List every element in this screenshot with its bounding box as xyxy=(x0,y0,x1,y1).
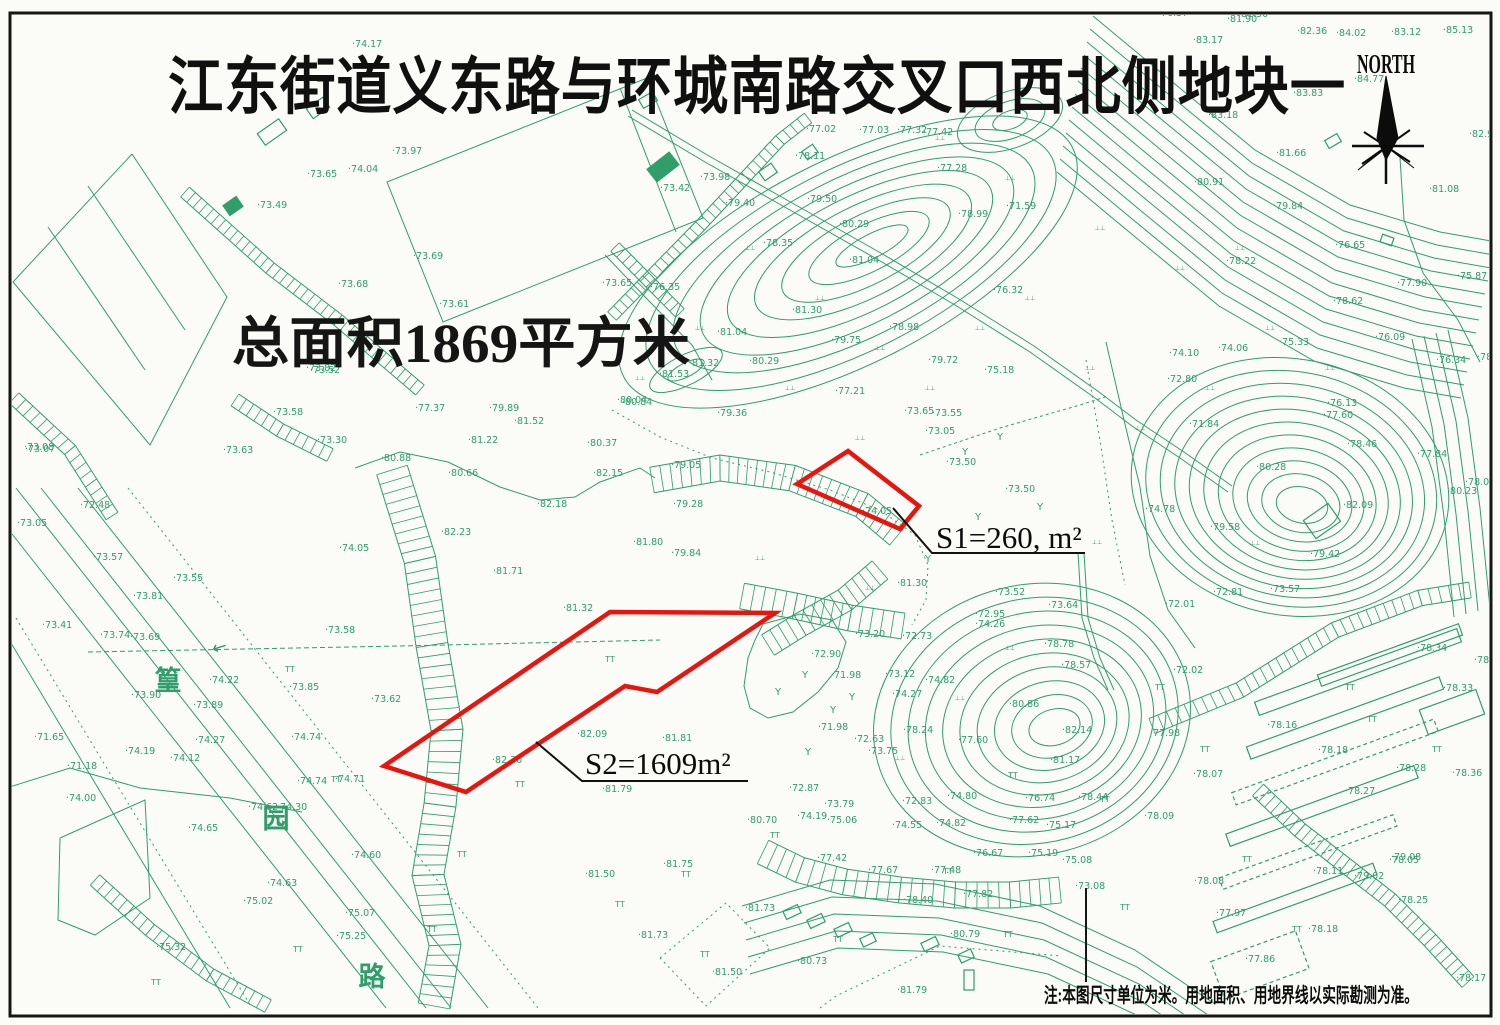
road-name-char-3: 路 xyxy=(359,961,387,992)
svg-text:·74.80: ·74.80 xyxy=(947,791,977,802)
svg-text:TT: TT xyxy=(1007,771,1018,780)
svg-text:·73.65: ·73.65 xyxy=(904,406,934,417)
svg-text:·82.18: ·82.18 xyxy=(537,499,567,510)
svg-text:·78.98: ·78.98 xyxy=(889,322,919,333)
svg-text:⊥⊥: ⊥⊥ xyxy=(865,585,875,592)
svg-text:·75.17: ·75.17 xyxy=(1046,820,1076,831)
svg-text:·73.75: ·73.75 xyxy=(868,746,898,757)
svg-text:·77.60: ·77.60 xyxy=(1323,410,1353,421)
svg-text:·75.33: ·75.33 xyxy=(1279,337,1309,348)
svg-text:·82.09: ·82.09 xyxy=(1343,500,1373,511)
svg-text:·74.63: ·74.63 xyxy=(267,878,297,889)
svg-text:·83.12: ·83.12 xyxy=(1391,27,1421,38)
svg-text:·81.50: ·81.50 xyxy=(585,869,615,880)
svg-text:·78.11: ·78.11 xyxy=(795,151,825,162)
svg-text:·73.08: ·73.08 xyxy=(24,442,54,453)
svg-text:·78.35: ·78.35 xyxy=(1474,655,1500,666)
svg-text:·73.52: ·73.52 xyxy=(995,587,1025,598)
svg-text:·75.19: ·75.19 xyxy=(1028,848,1058,859)
svg-text:·81.79: ·81.79 xyxy=(897,985,927,996)
svg-text:·73.81: ·73.81 xyxy=(133,591,163,602)
svg-text:·74.82: ·74.82 xyxy=(936,818,966,829)
svg-text:TT: TT xyxy=(1366,715,1377,724)
svg-text:·77.98: ·77.98 xyxy=(1150,728,1180,739)
svg-text:TT: TT xyxy=(1199,745,1210,754)
svg-text:·72.87: ·72.87 xyxy=(789,783,819,794)
svg-text:·81.73: ·81.73 xyxy=(638,930,668,941)
svg-text:·73.62: ·73.62 xyxy=(371,694,401,705)
svg-text:·78.28: ·78.28 xyxy=(1396,763,1426,774)
svg-text:·73.69: ·73.69 xyxy=(130,632,160,643)
svg-text:·79.05: ·79.05 xyxy=(671,460,701,471)
svg-text:·77.62: ·77.62 xyxy=(1009,815,1039,826)
svg-text:·77.97: ·77.97 xyxy=(1216,908,1246,919)
svg-text:·74.12: ·74.12 xyxy=(170,753,200,764)
svg-text:·72.80: ·72.80 xyxy=(1167,374,1197,385)
svg-text:⊥⊥: ⊥⊥ xyxy=(955,695,965,702)
svg-text:·74.55: ·74.55 xyxy=(892,820,922,831)
svg-text:·79.40: ·79.40 xyxy=(725,198,755,209)
svg-text:·78.25: ·78.25 xyxy=(1398,895,1428,906)
svg-text:·73.49: ·73.49 xyxy=(257,200,287,211)
svg-text:⊥⊥: ⊥⊥ xyxy=(925,385,935,392)
svg-text:·81.81: ·81.81 xyxy=(662,733,692,744)
svg-text:·77.37: ·77.37 xyxy=(415,403,445,414)
svg-text:Y: Y xyxy=(1036,502,1044,513)
svg-text:·81.32: ·81.32 xyxy=(689,358,719,369)
svg-text:⊥⊥: ⊥⊥ xyxy=(1095,225,1105,232)
svg-text:·78.18: ·78.18 xyxy=(1308,924,1338,935)
svg-text:·80.37: ·80.37 xyxy=(587,438,617,449)
svg-text:⊥⊥: ⊥⊥ xyxy=(1235,245,1245,252)
total-area-label: 总面积1869平方米 xyxy=(232,313,690,374)
svg-text:⊥⊥: ⊥⊥ xyxy=(1205,385,1215,392)
svg-text:·77.21: ·77.21 xyxy=(835,386,865,397)
svg-text:TT: TT xyxy=(292,945,303,954)
svg-text:·82.09: ·82.09 xyxy=(577,729,607,740)
svg-text:·79.84: ·79.84 xyxy=(671,548,701,559)
svg-text:TT: TT xyxy=(456,850,467,859)
svg-text:Y: Y xyxy=(774,687,782,698)
svg-text:·73.65: ·73.65 xyxy=(307,169,337,180)
svg-text:·78.78: ·78.78 xyxy=(1044,639,1074,650)
svg-text:·80.28: ·80.28 xyxy=(1256,462,1286,473)
svg-text:·73.57: ·73.57 xyxy=(93,552,123,563)
svg-text:·73.50: ·73.50 xyxy=(946,457,976,468)
svg-text:·78.62: ·78.62 xyxy=(1333,296,1363,307)
svg-text:·76.09: ·76.09 xyxy=(1375,332,1405,343)
svg-text:·73.55: ·73.55 xyxy=(173,573,203,584)
svg-text:·84.02: ·84.02 xyxy=(1336,28,1366,39)
svg-text:TT: TT xyxy=(1344,683,1355,692)
svg-text:·74.00: ·74.00 xyxy=(66,793,96,804)
svg-text:⊥⊥: ⊥⊥ xyxy=(635,375,645,382)
svg-text:·78.18: ·78.18 xyxy=(1318,745,1348,756)
svg-text:·73.30: ·73.30 xyxy=(317,435,347,446)
svg-text:·75.32: ·75.32 xyxy=(156,942,186,953)
svg-text:·77.82: ·77.82 xyxy=(963,889,993,900)
svg-text:·81.30: ·81.30 xyxy=(897,578,927,589)
svg-text:·73.20: ·73.20 xyxy=(855,629,885,640)
svg-text:·77.90: ·77.90 xyxy=(1397,278,1427,289)
svg-text:·81.17: ·81.17 xyxy=(1050,755,1080,766)
svg-text:·78.22: ·78.22 xyxy=(1226,256,1256,267)
svg-text:·78.08: ·78.08 xyxy=(1194,876,1224,887)
svg-text:⊥⊥: ⊥⊥ xyxy=(695,325,705,332)
svg-text:·78.40: ·78.40 xyxy=(903,895,933,906)
svg-text:·73.58: ·73.58 xyxy=(273,407,303,418)
svg-text:TT: TT xyxy=(514,780,525,789)
svg-text:⊥⊥: ⊥⊥ xyxy=(1250,540,1260,547)
svg-text:⊥⊥: ⊥⊥ xyxy=(745,245,755,252)
svg-text:·81.71: ·81.71 xyxy=(493,566,523,577)
svg-text:·80.84: ·80.84 xyxy=(622,397,652,408)
svg-text:·80.79: ·80.79 xyxy=(950,929,980,940)
svg-text:·74.74: ·74.74 xyxy=(297,776,327,787)
north-arrow-icon xyxy=(1352,76,1424,184)
svg-text:·79.89: ·79.89 xyxy=(489,403,519,414)
svg-text:·73.05: ·73.05 xyxy=(925,426,955,437)
north-label: NORTH xyxy=(1357,49,1415,79)
svg-text:·81.80: ·81.80 xyxy=(633,537,663,548)
svg-text:·74.71: ·74.71 xyxy=(335,774,365,785)
svg-text:·77.42: ·77.42 xyxy=(817,853,847,864)
svg-text:·79.36: ·79.36 xyxy=(717,408,747,419)
svg-text:·79.72: ·79.72 xyxy=(928,355,958,366)
svg-text:·73.65: ·73.65 xyxy=(602,278,632,289)
svg-text:·74.82: ·74.82 xyxy=(925,675,955,686)
svg-text:·78.99: ·78.99 xyxy=(958,209,988,220)
svg-text:·74.10: ·74.10 xyxy=(1169,348,1199,359)
svg-text:·82.36: ·82.36 xyxy=(1297,26,1327,37)
svg-text:⊥⊥: ⊥⊥ xyxy=(1135,425,1145,432)
svg-text:·73.85: ·73.85 xyxy=(289,682,319,693)
svg-text:·76.74: ·76.74 xyxy=(1025,793,1055,804)
svg-text:·78.57: ·78.57 xyxy=(1061,660,1091,671)
svg-text:·78.24: ·78.24 xyxy=(903,725,933,736)
spot-elevations: ·74.17·73.97·74.04·73.42·73.69·73.68·73.… xyxy=(17,8,1500,996)
svg-text:·81.32: ·81.32 xyxy=(563,603,593,614)
svg-text:·74.60: ·74.60 xyxy=(351,850,381,861)
svg-text:TT: TT xyxy=(680,870,691,879)
svg-text:·73.63: ·73.63 xyxy=(223,445,253,456)
svg-text:·78.27: ·78.27 xyxy=(1345,786,1375,797)
svg-text:·74.22: ·74.22 xyxy=(209,675,239,686)
svg-text:·72.48: ·72.48 xyxy=(80,500,110,511)
svg-text:·75.07: ·75.07 xyxy=(345,908,375,919)
svg-text:·77.84: ·77.84 xyxy=(1417,449,1447,460)
svg-text:·71.65: ·71.65 xyxy=(34,732,64,743)
svg-text:·73.68: ·73.68 xyxy=(338,279,368,290)
svg-text:·74.74: ·74.74 xyxy=(291,732,321,743)
svg-text:·72.63: ·72.63 xyxy=(854,734,884,745)
svg-text:·76.34: ·76.34 xyxy=(1436,355,1466,366)
svg-text:⊥⊥: ⊥⊥ xyxy=(855,435,865,442)
svg-text:·73.69: ·73.69 xyxy=(413,251,443,262)
svg-text:·80.91: ·80.91 xyxy=(1194,177,1224,188)
svg-text:·72.81: ·72.81 xyxy=(1213,587,1243,598)
svg-text:TT: TT xyxy=(1119,903,1130,912)
svg-text:·73.55: ·73.55 xyxy=(932,408,962,419)
svg-text:Y: Y xyxy=(801,670,809,681)
svg-text:TT: TT xyxy=(614,900,625,909)
svg-text:TT: TT xyxy=(426,925,437,934)
svg-text:·78.17: ·78.17 xyxy=(1456,973,1486,984)
svg-text:·79.50: ·79.50 xyxy=(807,194,837,205)
svg-text:·73.12: ·73.12 xyxy=(885,669,915,680)
svg-text:⊥⊥: ⊥⊥ xyxy=(1265,325,1275,332)
svg-text:·73.57: ·73.57 xyxy=(1270,584,1300,595)
svg-text:·77.03: ·77.03 xyxy=(859,125,889,136)
svg-text:·74.19: ·74.19 xyxy=(125,746,155,757)
svg-text:·72.02: ·72.02 xyxy=(1173,665,1203,676)
svg-text:Y: Y xyxy=(804,747,812,758)
svg-text:·79.28: ·79.28 xyxy=(673,499,703,510)
svg-text:·77.28: ·77.28 xyxy=(937,163,967,174)
svg-text:·72.90: ·72.90 xyxy=(811,649,841,660)
svg-text:Y: Y xyxy=(848,692,856,703)
svg-text:·79.42: ·79.42 xyxy=(1310,549,1340,560)
svg-text:·81.66: ·81.66 xyxy=(1276,148,1306,159)
svg-text:·71.18: ·71.18 xyxy=(67,761,97,772)
svg-text:·80.86: ·80.86 xyxy=(1009,699,1039,710)
svg-text:·72.01: ·72.01 xyxy=(1165,599,1195,610)
svg-text:⊥⊥: ⊥⊥ xyxy=(785,385,795,392)
svg-text:⊥⊥: ⊥⊥ xyxy=(1092,539,1102,546)
svg-text:TT: TT xyxy=(699,950,710,959)
svg-text:·75.06: ·75.06 xyxy=(827,815,857,826)
svg-text:·75.18: ·75.18 xyxy=(984,365,1014,376)
svg-text:·74.06: ·74.06 xyxy=(1218,343,1248,354)
svg-text:·82.23: ·82.23 xyxy=(441,527,471,538)
svg-text:·73.64: ·73.64 xyxy=(1048,600,1078,611)
svg-text:·72.83: ·72.83 xyxy=(902,796,932,807)
svg-text:·73.05: ·73.05 xyxy=(17,518,47,529)
svg-text:·76.65: ·76.65 xyxy=(1335,240,1365,251)
svg-text:⊥⊥: ⊥⊥ xyxy=(975,325,985,332)
map-title: 江东街道义东路与环城南路交叉口西北侧地块一 xyxy=(168,53,1346,122)
svg-text:·82.14: ·82.14 xyxy=(1062,725,1092,736)
svg-text:·73.74: ·73.74 xyxy=(100,630,130,641)
svg-text:·73.61: ·73.61 xyxy=(439,299,469,310)
svg-text:·74.05: ·74.05 xyxy=(339,543,369,554)
parcel-s2-label: S2=1609m² xyxy=(585,746,731,781)
svg-text:·78.33: ·78.33 xyxy=(1443,683,1473,694)
road-name-char-1: 篁 xyxy=(155,665,182,696)
svg-text:·73.41: ·73.41 xyxy=(42,620,72,631)
svg-text:·76.13: ·76.13 xyxy=(1327,398,1357,409)
svg-text:⊥⊥: ⊥⊥ xyxy=(1325,365,1335,372)
svg-text:Y: Y xyxy=(924,554,932,565)
survey-map: TTTTTTTTTTTTTTTTTTTTTTTTTTTTTTTTTTTTTTTT… xyxy=(0,0,1500,1025)
svg-text:⊥⊥: ⊥⊥ xyxy=(1005,175,1015,182)
svg-text:TT: TT xyxy=(284,665,295,674)
svg-text:·79.08: ·79.08 xyxy=(1391,852,1421,863)
svg-text:⊥⊥: ⊥⊥ xyxy=(1005,645,1015,652)
svg-text:·80.29: ·80.29 xyxy=(749,356,779,367)
svg-text:·82.15: ·82.15 xyxy=(593,468,623,479)
svg-text:·80.66: ·80.66 xyxy=(448,468,478,479)
road-name-char-2: 园 xyxy=(263,804,290,834)
svg-text:·77.02: ·77.02 xyxy=(806,124,836,135)
svg-text:·73.50: ·73.50 xyxy=(1005,484,1035,495)
svg-text:·74.27: ·74.27 xyxy=(195,735,225,746)
svg-text:⊥⊥: ⊥⊥ xyxy=(1175,265,1185,272)
svg-text:·78.16: ·78.16 xyxy=(1267,720,1297,731)
svg-text:TT: TT xyxy=(1154,683,1165,692)
svg-text:·77.86: ·77.86 xyxy=(1245,954,1275,965)
svg-text:·78.36: ·78.36 xyxy=(1452,768,1482,779)
svg-text:·81.52: ·81.52 xyxy=(514,416,544,427)
svg-text:·78.35: ·78.35 xyxy=(763,238,793,249)
svg-text:·73.42: ·73.42 xyxy=(660,183,690,194)
svg-text:·81.04: ·81.04 xyxy=(849,255,879,266)
svg-text:·75.02: ·75.02 xyxy=(243,896,273,907)
svg-text:·76.32: ·76.32 xyxy=(993,285,1023,296)
svg-text:Y: Y xyxy=(829,705,837,716)
svg-text:·77.48: ·77.48 xyxy=(931,865,961,876)
svg-text:·81.22: ·81.22 xyxy=(468,435,498,446)
svg-text:·74.78: ·74.78 xyxy=(1145,504,1175,515)
svg-text:·80.70: ·80.70 xyxy=(747,815,777,826)
svg-text:·81.75: ·81.75 xyxy=(663,859,693,870)
svg-text:·83.17: ·83.17 xyxy=(1193,35,1223,46)
svg-text:·78.34: ·78.34 xyxy=(1417,643,1447,654)
survey-note: 注:本图尺寸单位为米。用地面积、用地界线以实际勘测为准。 xyxy=(1044,983,1418,1007)
svg-text:TT: TT xyxy=(1241,855,1252,864)
svg-text:·74.27: ·74.27 xyxy=(892,689,922,700)
svg-text:·73.89: ·73.89 xyxy=(193,700,223,711)
svg-text:TT: TT xyxy=(1431,745,1442,754)
svg-text:·71.98: ·71.98 xyxy=(831,670,861,681)
svg-text:⊥⊥: ⊥⊥ xyxy=(1025,295,1035,302)
svg-text:·79.02: ·79.02 xyxy=(1354,871,1384,882)
svg-text:·78.44: ·78.44 xyxy=(1078,792,1108,803)
svg-text:·81.08: ·81.08 xyxy=(1429,184,1459,195)
survey-map-sheet: TTTTTTTTTTTTTTTTTTTTTTTTTTTTTTTTTTTTTTTT… xyxy=(0,0,1500,1025)
svg-text:·71.84: ·71.84 xyxy=(1189,419,1219,430)
svg-text:·75.25: ·75.25 xyxy=(336,931,366,942)
svg-text:·71.59: ·71.59 xyxy=(1006,201,1036,212)
svg-text:·81.79: ·81.79 xyxy=(602,784,632,795)
svg-text:·80.29: ·80.29 xyxy=(839,219,869,230)
svg-text:·81.73: ·81.73 xyxy=(745,903,775,914)
svg-text:·78.46: ·78.46 xyxy=(1347,439,1377,450)
svg-text:·78.07: ·78.07 xyxy=(1193,769,1223,780)
svg-text:·77.60: ·77.60 xyxy=(958,735,988,746)
svg-text:·81.50: ·81.50 xyxy=(712,967,742,978)
svg-text:·79.58: ·79.58 xyxy=(1210,522,1240,533)
svg-text:·75.08: ·75.08 xyxy=(1062,855,1092,866)
svg-text:·75.87: ·75.87 xyxy=(1457,271,1487,282)
svg-text:⊥⊥: ⊥⊥ xyxy=(875,345,885,352)
svg-text:·82.98: ·82.98 xyxy=(1469,129,1499,140)
parcel-s1-label: S1=260, m² xyxy=(936,520,1082,555)
svg-text:TT: TT xyxy=(832,935,843,944)
svg-text:·78.09: ·78.09 xyxy=(1144,811,1174,822)
svg-text:·81.30: ·81.30 xyxy=(792,305,822,316)
svg-text:·73.79: ·73.79 xyxy=(824,799,854,810)
svg-text:·74.17: ·74.17 xyxy=(352,39,382,50)
svg-text:·73.58: ·73.58 xyxy=(325,625,355,636)
svg-text:⊥⊥: ⊥⊥ xyxy=(1085,365,1095,372)
svg-text:·80.88: ·80.88 xyxy=(381,453,411,464)
svg-text:·74.26: ·74.26 xyxy=(975,619,1005,630)
svg-text:TT: TT xyxy=(604,655,615,664)
svg-text:·74.65: ·74.65 xyxy=(188,823,218,834)
svg-text:·73.08: ·73.08 xyxy=(1075,881,1105,892)
svg-text:·73.97: ·73.97 xyxy=(392,146,422,157)
svg-text:·73.98: ·73.98 xyxy=(700,172,730,183)
svg-text:·81.04: ·81.04 xyxy=(717,327,747,338)
svg-text:·80.23: ·80.23 xyxy=(1447,486,1477,497)
svg-text:TT: TT xyxy=(769,831,780,840)
svg-text:Y: Y xyxy=(996,432,1004,443)
svg-text:·76.67: ·76.67 xyxy=(973,848,1003,859)
svg-text:·79.75: ·79.75 xyxy=(831,335,861,346)
svg-text:TT: TT xyxy=(1002,930,1013,939)
svg-text:TT: TT xyxy=(1291,925,1302,934)
svg-text:⊥⊥: ⊥⊥ xyxy=(815,295,825,302)
svg-text:·71.98: ·71.98 xyxy=(818,722,848,733)
svg-text:·78.11: ·78.11 xyxy=(1313,866,1343,877)
svg-text:·74.19: ·74.19 xyxy=(797,811,827,822)
svg-text:·74.04: ·74.04 xyxy=(348,164,378,175)
svg-text:·77.67: ·77.67 xyxy=(868,865,898,876)
svg-text:·79.84: ·79.84 xyxy=(1273,201,1303,212)
road-direction-arrow-icon: ← xyxy=(209,635,230,660)
svg-text:⊥⊥: ⊥⊥ xyxy=(755,555,765,562)
svg-text:·76.35: ·76.35 xyxy=(650,282,680,293)
svg-text:·85.13: ·85.13 xyxy=(1443,25,1473,36)
svg-text:·77.42: ·77.42 xyxy=(923,127,953,138)
svg-text:·80.73: ·80.73 xyxy=(797,956,827,967)
svg-text:·72.73: ·72.73 xyxy=(902,631,932,642)
svg-text:TT: TT xyxy=(150,978,161,987)
slope-hatch-bands xyxy=(9,113,1474,1012)
svg-text:·78.62: ·78.62 xyxy=(1477,352,1500,363)
